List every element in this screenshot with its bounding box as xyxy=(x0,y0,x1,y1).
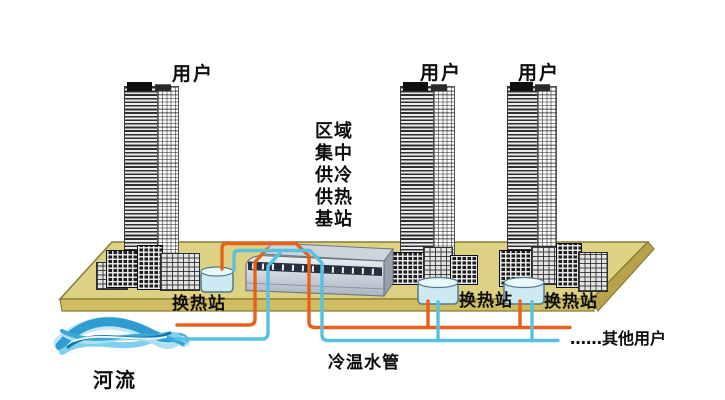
tank-top xyxy=(418,278,458,288)
district-cooling-heating-diagram: 用户 用户 用户 区域 集中 供冷 供热 基站 换热站 换热站 换热站 冷温水管… xyxy=(0,0,725,400)
label-user-3: 用户 xyxy=(518,58,560,85)
label-heat-exchange-station-3: 换热站 xyxy=(544,287,598,312)
station-label-line: 基站 xyxy=(309,209,359,231)
river-graphic xyxy=(60,322,184,352)
label-heat-exchange-station-1: 换热站 xyxy=(172,289,226,314)
label-cold-warm-water-pipe: 冷温水管 xyxy=(328,348,400,373)
label-heat-exchange-station-2: 换热站 xyxy=(459,286,513,311)
label-user-2: 用户 xyxy=(420,58,462,85)
station-label-line: 集中 xyxy=(309,143,359,165)
label-river: 河流 xyxy=(93,364,137,393)
tank-top xyxy=(201,267,233,276)
label-other-users: ……其他用户 xyxy=(570,325,666,349)
heat-exchange-tank-2 xyxy=(418,278,458,305)
station-label-line: 供冷 xyxy=(309,165,359,187)
label-user-1: 用户 xyxy=(172,59,214,86)
station-label-line: 区域 xyxy=(309,121,359,143)
label-central-station: 区域 集中 供冷 供热 基站 xyxy=(309,121,359,231)
station-label-line: 供热 xyxy=(309,187,359,209)
